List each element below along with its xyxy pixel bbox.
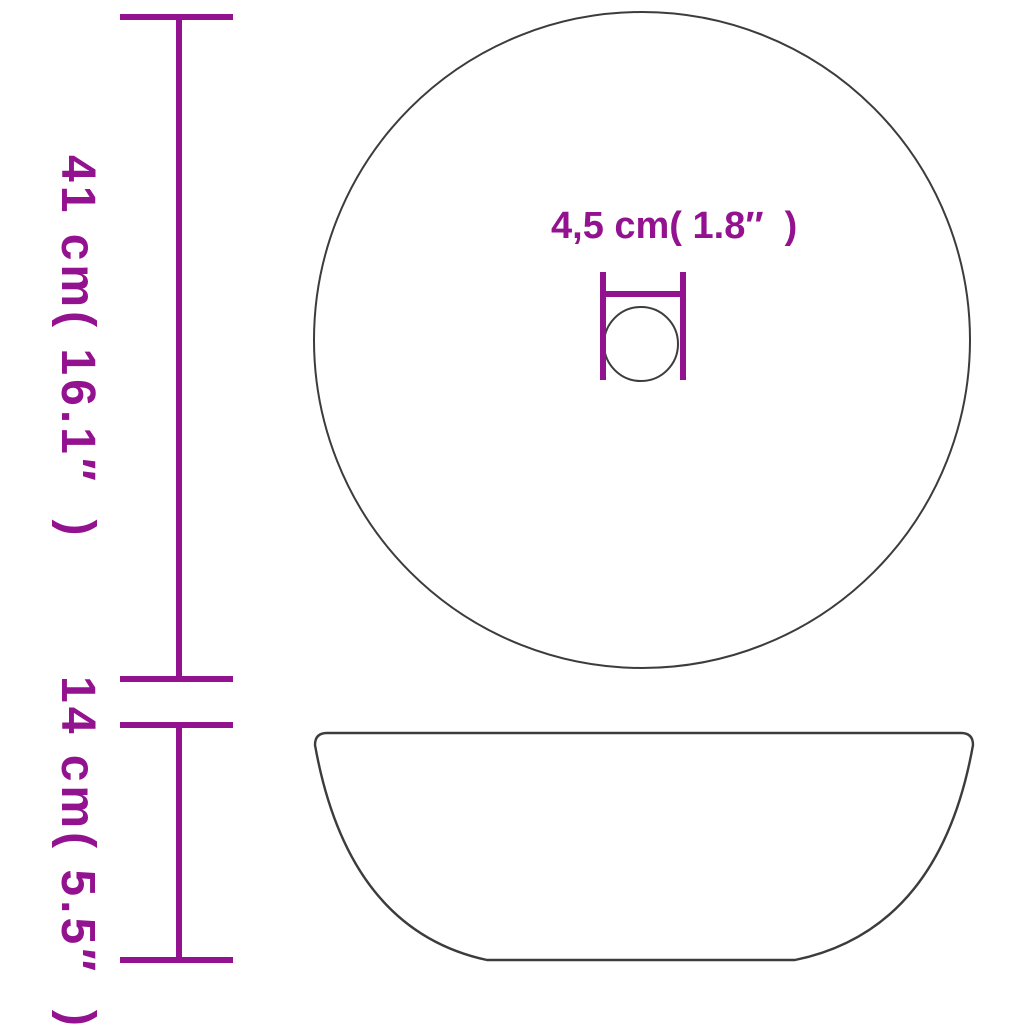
diameter-dimension-line xyxy=(120,17,233,679)
drain-hole-circle xyxy=(604,307,678,381)
height-label: 14 cm( 5.5″ ) xyxy=(50,676,105,1024)
diagram-canvas xyxy=(0,0,1024,1024)
dimension-diagram: 41 cm( 16.1″ ) 14 cm( 5.5″ ) 4,5 cm( 1.8… xyxy=(0,0,1024,1024)
drain-label: 4,5 cm( 1.8″ ) xyxy=(551,205,797,249)
diameter-label: 41 cm( 16.1″ ) xyxy=(50,155,105,540)
height-dimension-line xyxy=(120,725,233,960)
basin-side-view-outline xyxy=(315,733,973,960)
